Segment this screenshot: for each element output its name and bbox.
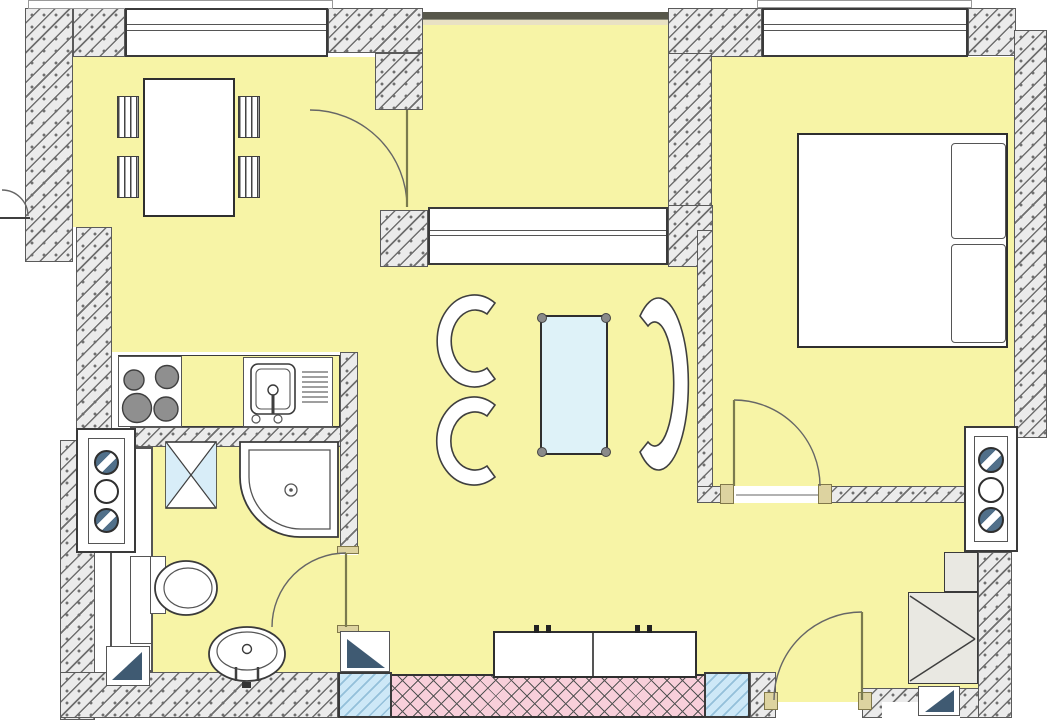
- loggia-glazing: [423, 12, 668, 19]
- wall-exterior-left-top: [25, 8, 73, 262]
- window-glass-line: [430, 235, 666, 237]
- pipe-icon: [978, 447, 1004, 473]
- window-glass-line: [430, 230, 666, 232]
- pillow: [951, 143, 1006, 239]
- wall-top-mid-left: [328, 8, 423, 53]
- wall-right-bottom-column: [978, 552, 1012, 718]
- door-frame: [337, 546, 359, 554]
- dining-chair: [238, 156, 260, 198]
- dining-chair: [238, 96, 260, 138]
- door-frame: [764, 692, 778, 710]
- door-frame: [818, 484, 832, 504]
- door-frame: [858, 692, 872, 710]
- dining-table: [143, 78, 235, 217]
- wardrobe-large: [908, 592, 978, 684]
- pipe-icon: [94, 450, 119, 475]
- pipe-icon: [94, 508, 119, 533]
- glass-panel-right: [704, 672, 750, 718]
- wall-bottom-left: [60, 672, 338, 718]
- glass-panel-left: [338, 672, 392, 718]
- pipe-icon: [978, 477, 1004, 503]
- partition-bottom-pink: [392, 674, 704, 718]
- pillow: [951, 244, 1006, 343]
- wall-bedroom-bottom: [822, 486, 967, 503]
- pipe-icon: [94, 479, 119, 504]
- toilet-tank: [150, 556, 166, 614]
- marker-box-left: [106, 646, 150, 686]
- loggia-living-window: [428, 207, 668, 265]
- floor-living: [358, 265, 697, 674]
- wall-top-left-corner: [73, 8, 125, 57]
- marker-box-right: [918, 686, 960, 716]
- sideboard: [493, 631, 697, 678]
- wall-kitchen-bath: [130, 427, 358, 447]
- window-glass-line: [127, 30, 326, 32]
- window-glass-line: [127, 24, 326, 26]
- kitchen-stove: [118, 356, 182, 427]
- window-glass-line: [764, 24, 966, 26]
- bedroom-window: [762, 8, 968, 57]
- wall-bath-right: [340, 352, 358, 547]
- door-frame: [720, 484, 734, 504]
- kitchen-sink-unit: [243, 357, 333, 427]
- window-glass-line: [764, 30, 966, 32]
- duct-left: [130, 556, 152, 644]
- sideboard-divider: [592, 633, 594, 676]
- wall-living-bedroom: [697, 230, 713, 503]
- floor-loggia: [423, 25, 668, 207]
- wall-loggia-left-leg: [375, 53, 423, 110]
- window-sill-right: [757, 0, 972, 8]
- floor-kitchen: [112, 227, 398, 352]
- floor-bath-doorway: [340, 555, 358, 625]
- pipe-icon: [978, 507, 1004, 533]
- wardrobe-small: [944, 552, 978, 592]
- wall-loggia-right-block: [668, 8, 762, 57]
- wall-exterior-right: [1014, 30, 1047, 438]
- dining-chair: [117, 156, 139, 198]
- floor-bathroom: [153, 447, 340, 672]
- loggia-threshold: [423, 19, 668, 25]
- floor-dining: [73, 57, 398, 227]
- wall-top-right-corner: [968, 8, 1016, 56]
- marker-box-bath: [340, 631, 390, 672]
- floor-entrance-tab: [776, 672, 862, 702]
- dining-window: [125, 8, 328, 57]
- wall-loggia-left-pillar: [380, 210, 428, 267]
- wall-interior-left-column: [76, 227, 112, 440]
- coffee-table: [540, 315, 608, 455]
- floor-plan: [0, 0, 1047, 720]
- dining-chair: [117, 96, 139, 138]
- floor-doorway-loggia: [380, 110, 428, 210]
